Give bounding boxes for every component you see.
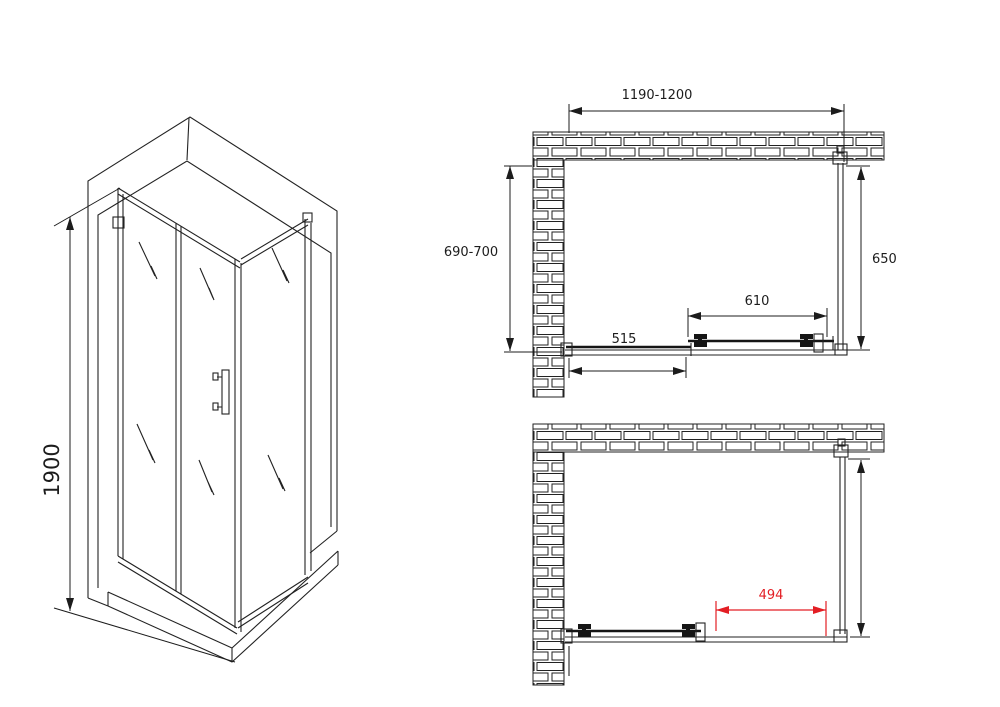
brick-wall-left xyxy=(533,160,564,397)
wall-outer-contour xyxy=(88,117,337,598)
shine-mark xyxy=(200,268,214,300)
dimension-label-depth: 690-700 xyxy=(444,245,498,260)
dimension-label-side: 650 xyxy=(872,252,897,267)
side-panel xyxy=(238,213,312,628)
side-panel-lines xyxy=(840,457,845,634)
door-handle-plan xyxy=(814,334,823,352)
side-panel-back-post xyxy=(305,219,311,575)
dimension-side-unlabeled xyxy=(848,459,870,637)
wall-corner-edge xyxy=(187,118,189,160)
arrowhead-up xyxy=(857,167,865,180)
door-handle xyxy=(213,370,229,414)
arrowhead-right xyxy=(673,367,686,375)
extension-lines xyxy=(716,601,826,636)
arrowhead-up xyxy=(857,460,865,473)
iso-view: 1900 xyxy=(40,117,338,662)
extension-line xyxy=(54,188,120,226)
arrowhead-right xyxy=(814,312,827,320)
arrowhead-left xyxy=(688,312,701,320)
shine-mark xyxy=(137,424,155,463)
dimension-label-fixed: 515 xyxy=(612,332,637,347)
shine-mark xyxy=(199,460,214,495)
dimension-label-opening: 494 xyxy=(759,588,784,603)
bottom-rail xyxy=(565,637,847,642)
plan-view-top: 1190-1200 690-700 650 610 xyxy=(444,88,897,397)
brick-wall-top xyxy=(533,424,884,452)
arrowhead-right xyxy=(813,606,826,614)
shower-tray xyxy=(108,551,338,662)
extension-lines xyxy=(848,459,870,637)
arrowhead-left xyxy=(569,107,582,115)
dimension-label-width: 1190-1200 xyxy=(622,88,693,103)
wall-inner-contour xyxy=(98,161,331,588)
arrowhead-down xyxy=(857,623,865,636)
dimension-opening-494: 494 xyxy=(716,588,826,636)
plan-view-bottom: 494 xyxy=(533,424,884,685)
dimension-label-door: 610 xyxy=(745,294,770,309)
extension-lines xyxy=(688,308,827,337)
brick-wall-top xyxy=(533,132,884,160)
dimension-door: 610 xyxy=(688,294,827,337)
arrowhead-left xyxy=(716,606,729,614)
door-middle-stile xyxy=(176,223,181,594)
arrowhead-down xyxy=(66,598,74,611)
brick-wall-left xyxy=(533,452,564,685)
arrowhead-down xyxy=(857,336,865,349)
side-panel-lines xyxy=(838,163,843,350)
dimension-side-panel: 650 xyxy=(846,166,897,350)
dimension-label-1900: 1900 xyxy=(40,443,64,496)
wall-floor-edges xyxy=(88,531,337,606)
extension-lines xyxy=(569,357,686,378)
iso-walls xyxy=(88,117,337,606)
door-top-rail xyxy=(118,188,240,268)
tray-rim xyxy=(108,551,338,662)
drawing-canvas: 1900 xyxy=(0,0,1000,707)
handle-bar xyxy=(222,370,229,414)
arrowhead-left xyxy=(569,367,582,375)
door-right-post xyxy=(235,259,241,632)
door-bottom-rail xyxy=(118,556,237,634)
glass-shine-marks xyxy=(137,242,289,495)
shine-mark xyxy=(268,455,285,491)
bottom-rail xyxy=(565,350,846,355)
arrowhead-down xyxy=(506,338,514,351)
arrowhead-up xyxy=(506,166,514,179)
shine-mark xyxy=(272,248,289,283)
arrowhead-right xyxy=(831,107,844,115)
door-left-stile xyxy=(118,188,123,559)
technical-drawing-page: 1900 xyxy=(0,0,1000,707)
side-panel-top-edge xyxy=(241,219,308,265)
shine-mark xyxy=(139,242,157,279)
extension-lines xyxy=(846,166,870,350)
